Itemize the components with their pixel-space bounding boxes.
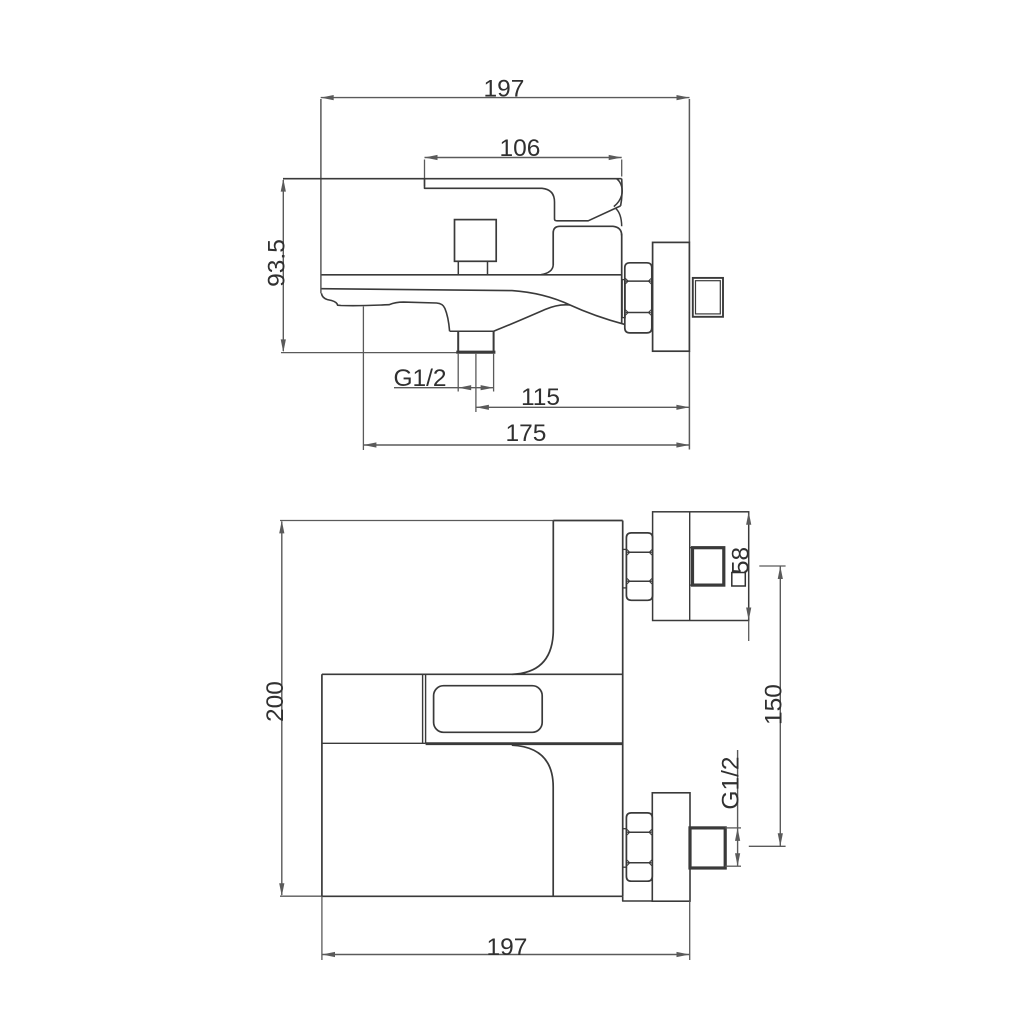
svg-text:197: 197: [487, 934, 528, 961]
svg-text:150: 150: [761, 684, 788, 725]
svg-text:93.5: 93.5: [264, 239, 291, 287]
svg-text:G1/2: G1/2: [393, 365, 446, 392]
svg-text:200: 200: [262, 681, 289, 722]
svg-text:175: 175: [506, 420, 547, 447]
svg-text:197: 197: [484, 76, 525, 103]
svg-text:58: 58: [728, 547, 755, 574]
svg-text:115: 115: [521, 384, 560, 411]
svg-text:G1/2: G1/2: [718, 756, 745, 809]
svg-text:106: 106: [500, 135, 541, 162]
